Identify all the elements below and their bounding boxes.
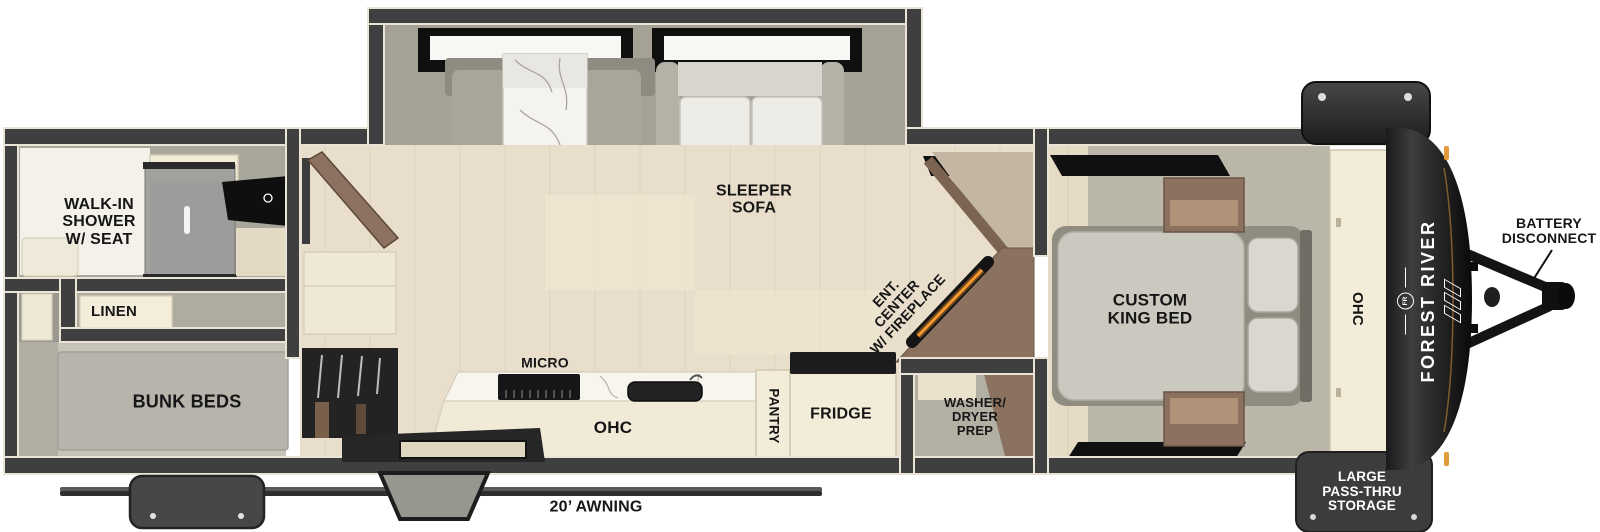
washer-dryer-label: WASHER/ DRYER PREP [944,396,1006,438]
nightstand-bottom [1164,392,1244,446]
floorplan-svg [0,0,1600,532]
storage-compartment-door [130,476,264,528]
cooktop-micro-icon [498,374,580,400]
brand-deco-line [1405,315,1407,335]
kitchen-ohc-label: OHC [594,419,632,437]
clearance-light-bottom-icon [1444,452,1449,466]
brand-slashes-icon [1444,284,1461,319]
forest-river-brand: FR FOREST RIVER [1397,219,1461,382]
bedroom [1048,145,1388,462]
brand-wordmark: FOREST RIVER [1418,219,1439,382]
sleeper-sofa-label: SLEEPER SOFA [716,183,792,218]
shower-glass-door [143,162,237,281]
floorplan-canvas: WALK-IN SHOWER W/ SEAT LINEN BUNK BEDS S… [0,0,1600,532]
brand-deco-line [1405,268,1407,288]
bunk-steps-unit [302,348,398,438]
fridge-label: FRIDGE [810,405,872,422]
bathroom [17,145,288,281]
linen-label: LINEN [91,304,137,320]
forest-river-emblem-icon: FR [1397,293,1414,310]
clearance-light-top-icon [1444,146,1449,160]
vanity-sink [222,176,288,226]
micro-label: MICRO [521,355,569,370]
bedroom-window-top-icon [1050,155,1230,176]
battery-disconnect-label: BATTERY DISCONNECT [1502,216,1597,246]
walk-in-shower-label: WALK-IN SHOWER W/ SEAT [62,196,135,248]
battery-disconnect-pointer [1533,250,1552,280]
nightstand-top [1164,178,1244,232]
bunk-beds-label: BUNK BEDS [133,392,242,411]
brand-emblem-row: FR [1397,268,1414,335]
entry-steps [380,473,488,519]
bedroom-ohc-label: OHC [1349,292,1365,326]
custom-king-bed-label: CUSTOM KING BED [1108,292,1193,329]
awning-label: 20’ AWNING [550,498,643,515]
pantry-label: PANTRY [766,388,781,443]
pass-thru-storage-label: LARGE PASS-THRU STORAGE [1322,470,1402,514]
